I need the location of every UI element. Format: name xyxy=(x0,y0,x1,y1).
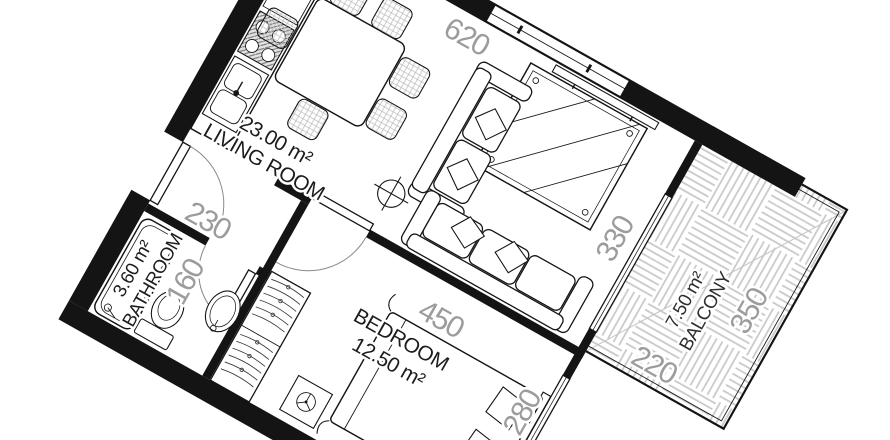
floor-plan: 620 330 450 280 230 160 220 350 23.00 m²… xyxy=(0,0,890,440)
floor-plan-page: 620 330 450 280 230 160 220 350 23.00 m²… xyxy=(0,0,890,440)
